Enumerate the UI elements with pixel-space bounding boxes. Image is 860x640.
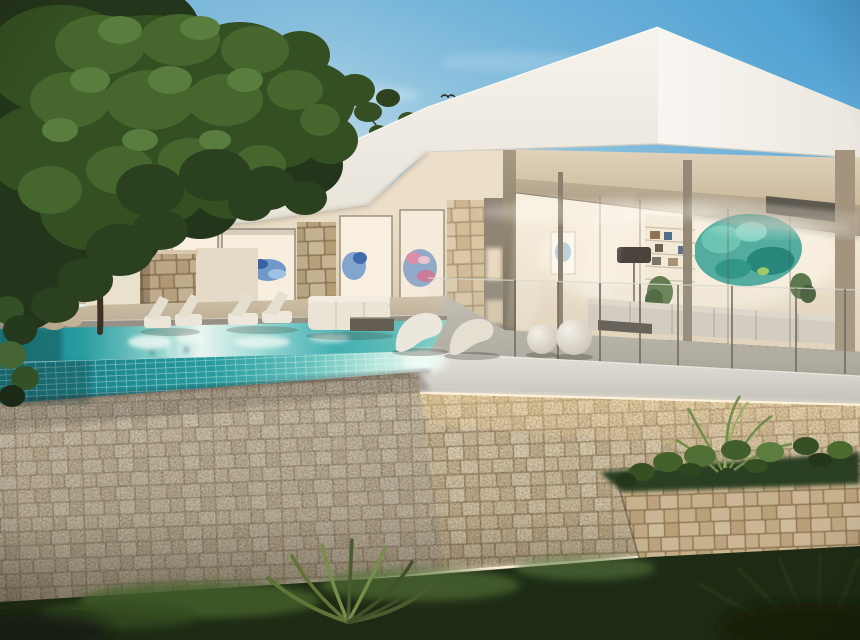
vignette-overlay <box>0 0 860 640</box>
villa-render-stage <box>0 0 860 640</box>
villa-render <box>0 0 860 640</box>
